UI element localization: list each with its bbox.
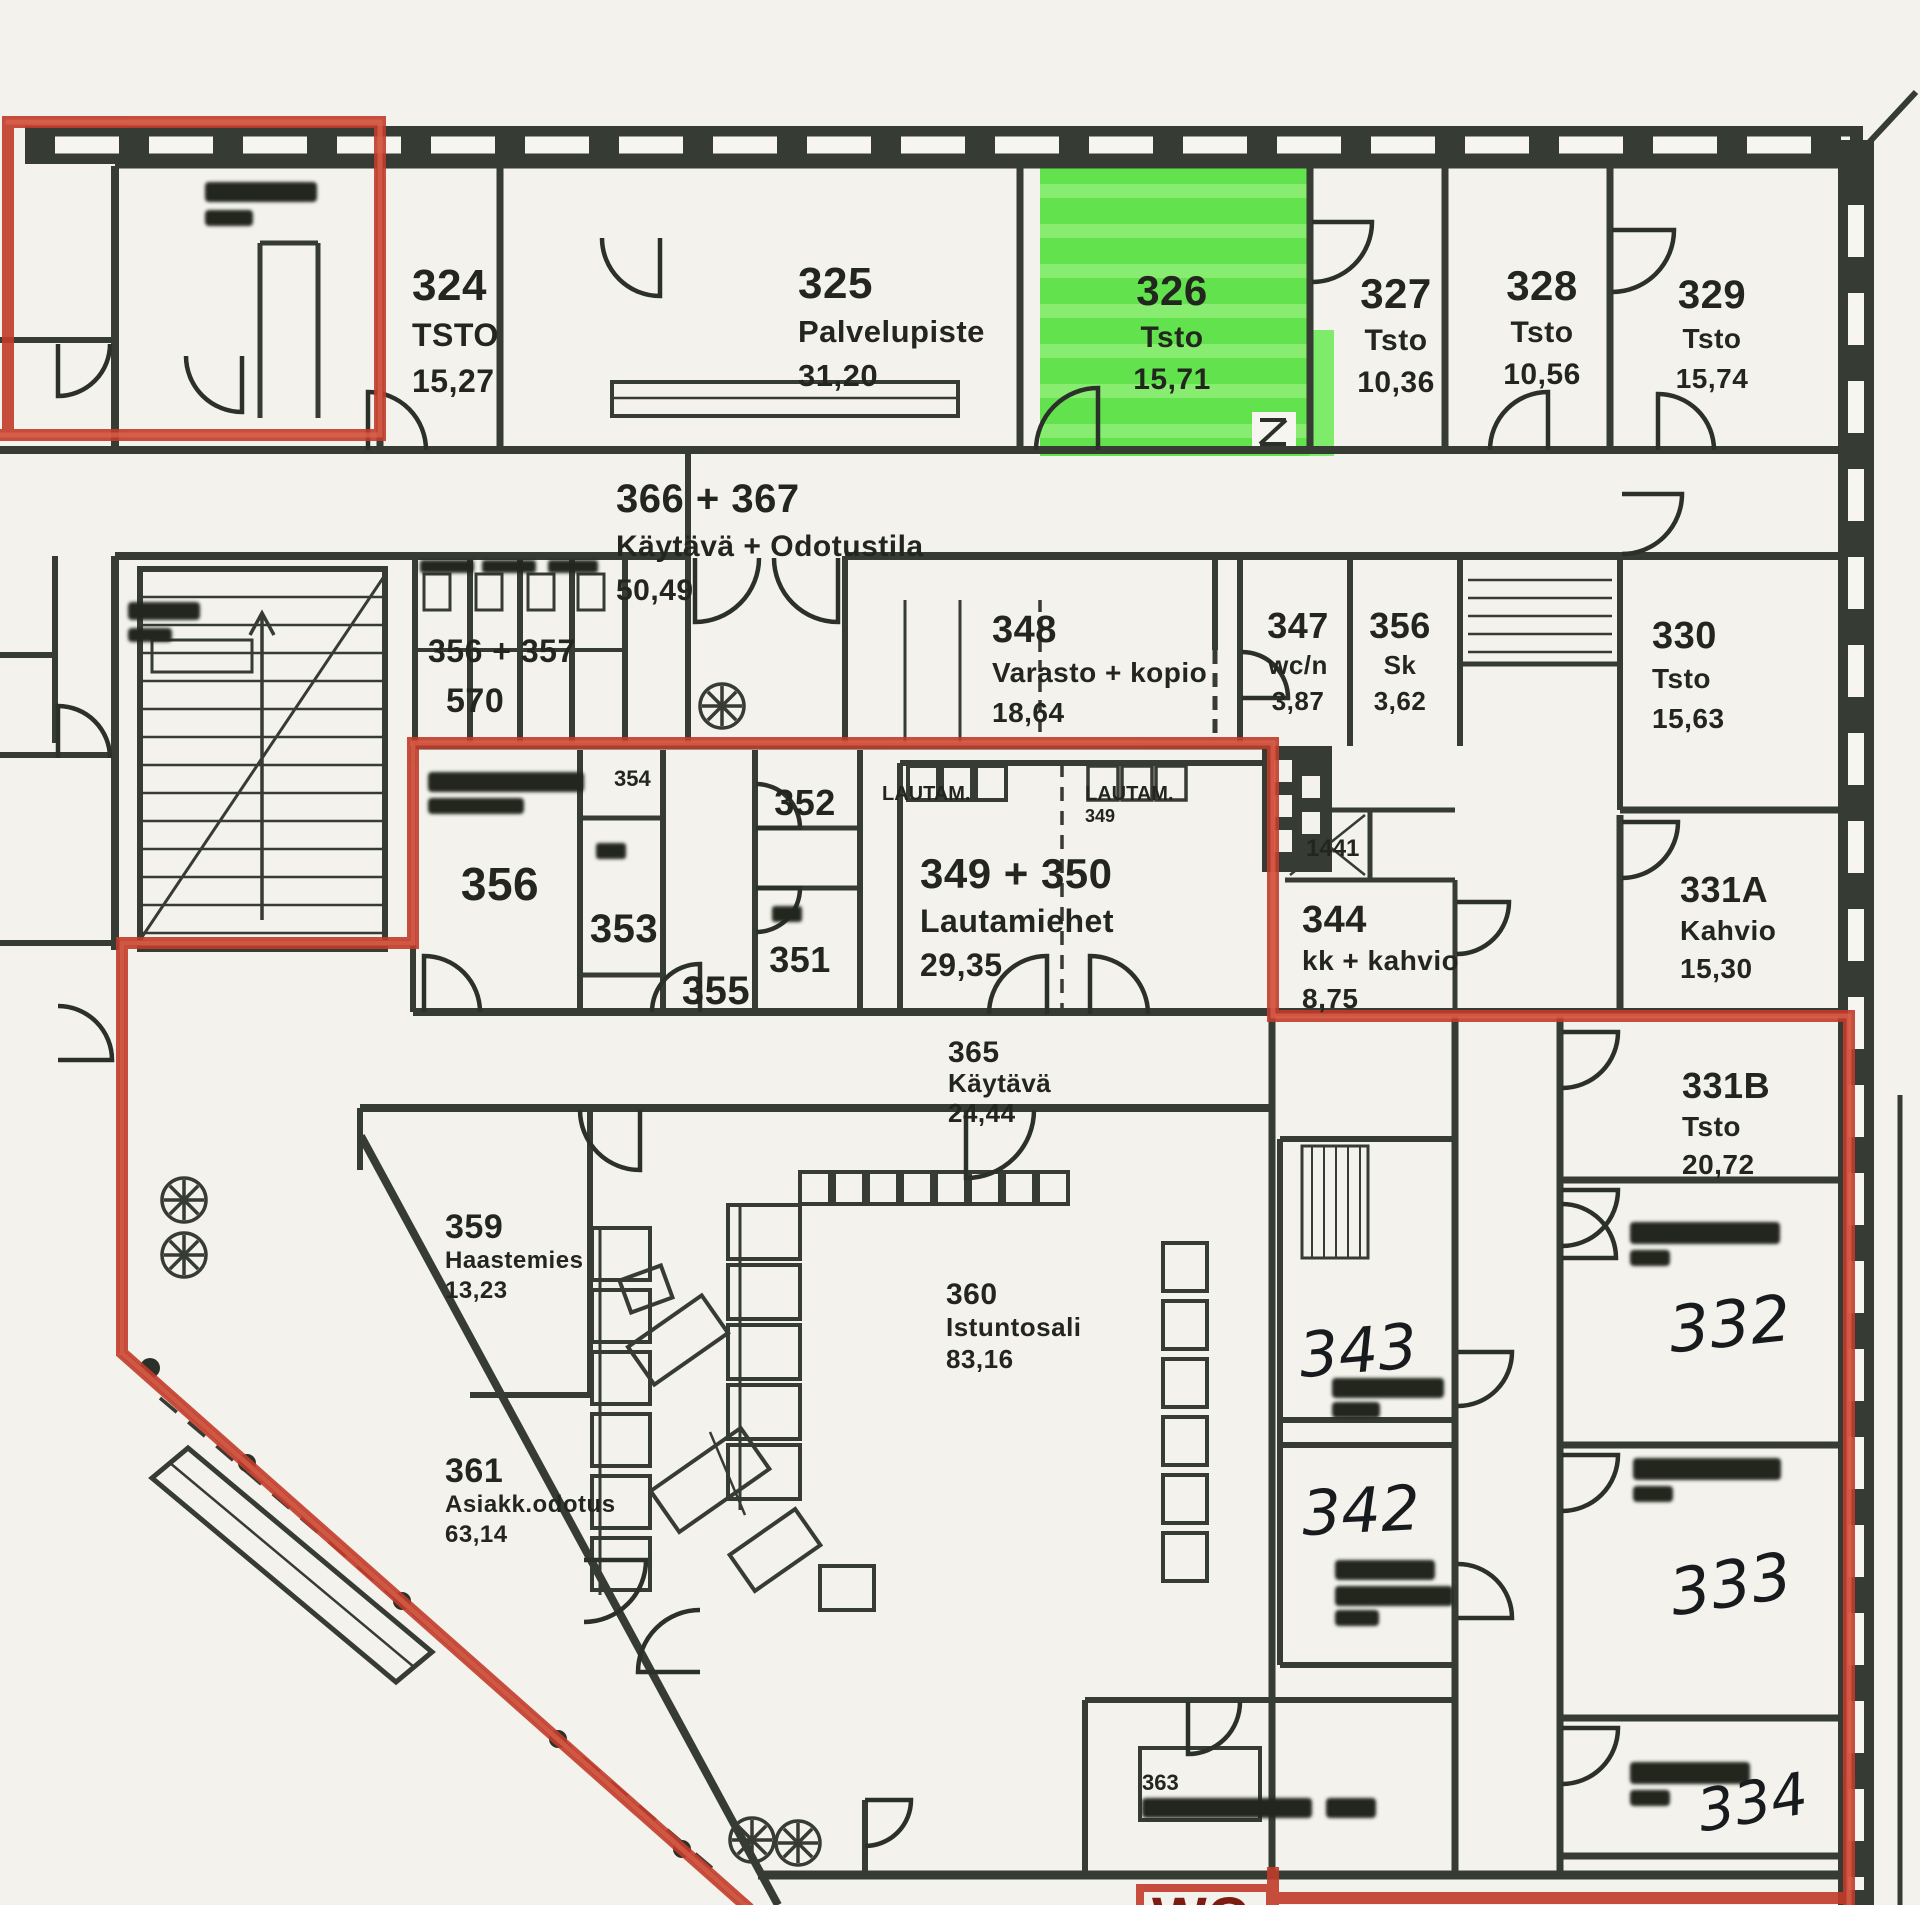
bench-seat [1163, 1359, 1207, 1407]
room-label-num-354: 354 [614, 766, 651, 791]
door-swing-icon [1562, 1204, 1616, 1258]
room-label-352: 352 [774, 782, 836, 823]
bench-seat [1163, 1243, 1207, 1291]
room-label-331A: 331AKahvio15,30 [1680, 869, 1776, 984]
fan-icon [700, 684, 744, 728]
bench-seat [902, 1172, 932, 1204]
room-label-570: 570 [446, 682, 504, 720]
fan-icon [162, 1178, 206, 1222]
door-swing-icon [1622, 822, 1678, 878]
floor-plan-page: WC 324TSTO15,27325Palvelupiste31,20326Ts… [0, 0, 1920, 1905]
fan-icon [162, 1233, 206, 1277]
floor-plan-drawing: WC 324TSTO15,27325Palvelupiste31,20326Ts… [0, 0, 1920, 1905]
room-label-324: 324TSTO15,27 [412, 261, 499, 399]
bench-seat [868, 1172, 898, 1204]
door-swing-icon [1458, 1352, 1512, 1406]
door-swing-icon [58, 1006, 112, 1060]
door-swing-icon [1622, 494, 1682, 554]
room-label-num-1441: 1441 [1306, 835, 1359, 862]
bench-seat [1163, 1475, 1207, 1523]
room-label-326: 326Tsto15,71 [1133, 267, 1211, 396]
bench-seat [1004, 1172, 1034, 1204]
door-swing-icon [1457, 902, 1509, 954]
room-label-366-367: 366 + 367Käytävä + Odotustila50,49 [616, 477, 924, 607]
room-label-331B: 331BTsto20,72 [1682, 1065, 1770, 1180]
door-swing-icon [1562, 1190, 1618, 1246]
door-swing-icon [695, 558, 759, 622]
room-label-344: 344kk + kahvio8,75 [1302, 899, 1459, 1014]
room-label-332: 332 [1665, 1282, 1794, 1368]
fan-icon [730, 1818, 774, 1862]
bench-seat [1038, 1172, 1068, 1204]
door-swings [58, 222, 1714, 1846]
room-label-327: 327Tsto10,36 [1357, 270, 1435, 399]
room-label-356-sk: 356Sk3,62 [1369, 605, 1431, 716]
room-label-342: 342 [1300, 1471, 1422, 1550]
door-swing-icon [774, 558, 838, 622]
room-label-lautam-right-num: 349 [1085, 806, 1115, 826]
door-swing-icon [1612, 230, 1674, 292]
bench-seat [1163, 1533, 1207, 1581]
room-label-329: 329Tsto15,74 [1676, 273, 1749, 394]
wc-label: WC [1152, 1886, 1249, 1905]
room-label-325: 325Palvelupiste31,20 [798, 259, 985, 393]
bench-seat [1163, 1301, 1207, 1349]
room-label-356: 356 [461, 858, 539, 910]
room-label-num-363: 363 [1142, 1770, 1179, 1795]
interior-walls [0, 166, 1838, 1905]
room-label-351: 351 [769, 939, 831, 980]
room-label-356-357-wc: 356 + 357 [428, 633, 576, 669]
room-label-330: 330Tsto15,63 [1652, 615, 1725, 734]
room-label-361: 361Asiakk.odotus63,14 [445, 1452, 616, 1548]
room-label-348: 348Varasto + kopio18,64 [992, 609, 1207, 728]
door-swing-icon [1562, 1728, 1618, 1784]
bench-seat [1163, 1417, 1207, 1465]
door-swing-icon [1658, 394, 1714, 450]
room-label-353: 353 [590, 907, 658, 951]
door-swing-icon [865, 1800, 911, 1846]
bench-seat [936, 1172, 966, 1204]
door-swing-icon [58, 344, 110, 396]
door-swing-icon [1562, 1455, 1618, 1511]
room-label-347: 347wc/n3,87 [1267, 605, 1329, 716]
door-swing-icon [602, 238, 660, 296]
room-label-343: 343 [1296, 1309, 1420, 1392]
room-label-360: 360Istuntosali83,16 [946, 1278, 1082, 1374]
room-label-lautam-right: LAUTAM. [1085, 783, 1174, 805]
room-label-lautam-left: LAUTAM. [882, 783, 971, 805]
door-swing-icon [58, 706, 110, 758]
room-label-328: 328Tsto10,56 [1503, 262, 1581, 391]
bench-seat [834, 1172, 864, 1204]
room-label-355: 355 [682, 969, 750, 1013]
fan-icon [776, 1821, 820, 1865]
staircase [140, 569, 385, 949]
exterior-walls [25, 92, 1916, 1905]
room-label-333: 333 [1665, 1539, 1797, 1631]
door-swing-icon [1458, 1564, 1512, 1618]
door-swing-icon [1490, 392, 1548, 450]
door-swing-icon [424, 956, 480, 1012]
bench-seat [976, 766, 1006, 800]
bench-seat [800, 1172, 830, 1204]
door-swing-icon [186, 356, 242, 412]
room-label-359: 359Haastemies13,23 [445, 1208, 583, 1304]
door-swing-icon [1562, 1032, 1618, 1088]
door-swing-icon [1090, 956, 1148, 1014]
